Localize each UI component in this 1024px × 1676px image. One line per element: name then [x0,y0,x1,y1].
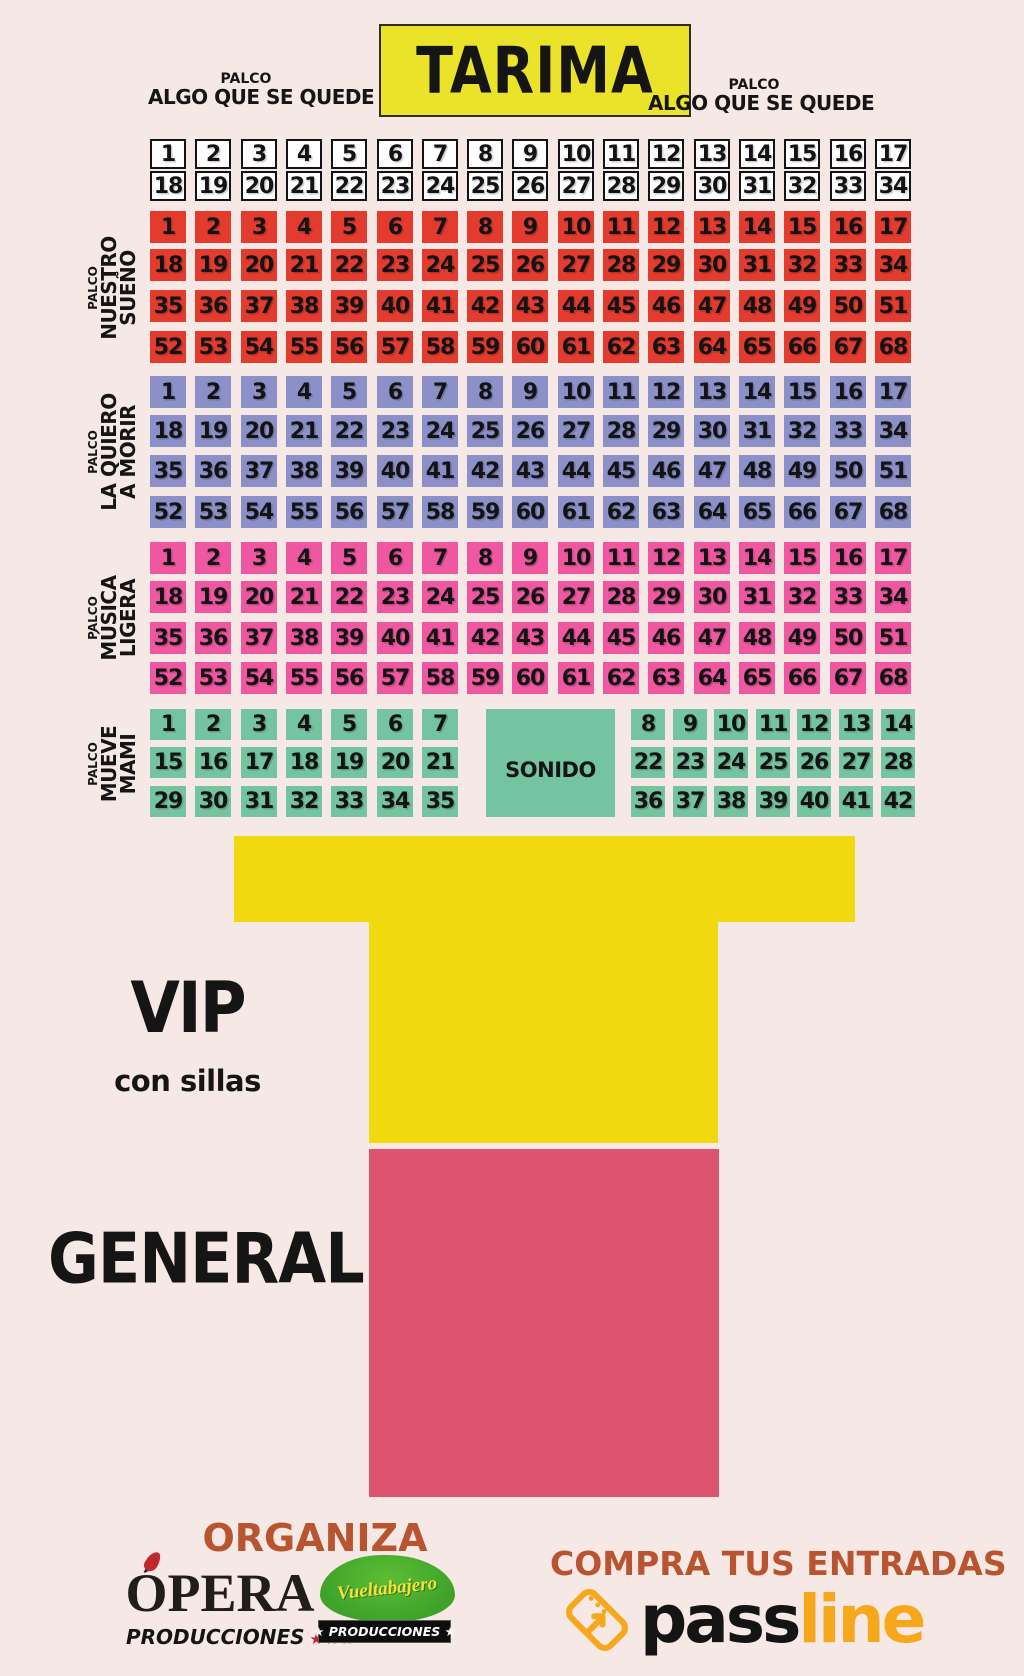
seat-musica-ligera-36[interactable]: 36 [195,622,231,654]
seat-la-quiero-a-morir-4[interactable]: 4 [286,376,322,408]
seat-nuestro-sueno-60[interactable]: 60 [512,331,548,363]
seat-nuestro-sueno-62[interactable]: 62 [603,331,639,363]
seat-la-quiero-a-morir-27[interactable]: 27 [558,415,594,447]
seat-musica-ligera-7[interactable]: 7 [422,542,458,574]
seat-nuestro-sueno-54[interactable]: 54 [241,331,277,363]
seat-musica-ligera-67[interactable]: 67 [830,662,866,694]
seat-la-quiero-a-morir-45[interactable]: 45 [603,455,639,487]
seat-nuestro-sueno-29[interactable]: 29 [648,249,684,281]
seat-la-quiero-a-morir-42[interactable]: 42 [467,455,503,487]
palco-name-line: MAMI [119,726,138,802]
seat-algo-que-se-quede-2[interactable]: 2 [195,139,231,169]
palco-algo-que-se-quede-label-left: PALCO ALGO QUE SE QUEDE [148,72,344,108]
seat-la-quiero-a-morir-29[interactable]: 29 [648,415,684,447]
seat-musica-ligera-60[interactable]: 60 [512,662,548,694]
seat-musica-ligera-62[interactable]: 62 [603,662,639,694]
seat-nuestro-sueno-32[interactable]: 32 [784,249,820,281]
seat-algo-que-se-quede-4[interactable]: 4 [286,139,322,169]
palco-name-line: A MORIR [119,393,138,510]
seat-nuestro-sueno-21[interactable]: 21 [286,249,322,281]
vip-zone-bar[interactable] [234,836,855,922]
seat-la-quiero-a-morir-33[interactable]: 33 [830,415,866,447]
seat-musica-ligera-20[interactable]: 20 [241,581,277,613]
seat-musica-ligera-66[interactable]: 66 [784,662,820,694]
seat-musica-ligera-23[interactable]: 23 [377,581,413,613]
seat-musica-ligera-41[interactable]: 41 [422,622,458,654]
seat-algo-que-se-quede-20[interactable]: 20 [241,171,277,201]
seat-nuestro-sueno-36[interactable]: 36 [195,290,231,322]
seat-mueve-mami-42[interactable]: 42 [881,786,915,817]
palco-algo-que-se-quede-label-right: PALCO ALGO QUE SE QUEDE [648,78,860,114]
seat-algo-que-se-quede-9[interactable]: 9 [512,139,548,169]
seat-nuestro-sueno-1[interactable]: 1 [150,211,186,243]
seat-mueve-mami-1[interactable]: 1 [150,709,186,740]
seat-musica-ligera-22[interactable]: 22 [331,581,367,613]
seat-nuestro-sueno-43[interactable]: 43 [512,290,548,322]
seat-mueve-mami-23[interactable]: 23 [673,747,707,778]
seat-mueve-mami-32[interactable]: 32 [286,786,322,817]
opera-sub-text: PRODUCCIONES [126,1625,305,1649]
seat-mueve-mami-20[interactable]: 20 [377,747,413,778]
palco-name-line: SUEÑO [119,236,138,340]
seat-la-quiero-a-morir-13[interactable]: 13 [694,376,730,408]
seat-la-quiero-a-morir-8[interactable]: 8 [467,376,503,408]
seat-algo-que-se-quede-28[interactable]: 28 [603,171,639,201]
seat-algo-que-se-quede-25[interactable]: 25 [467,171,503,201]
seat-la-quiero-a-morir-54[interactable]: 54 [241,496,277,528]
seat-musica-ligera-65[interactable]: 65 [739,662,775,694]
seat-nuestro-sueno-55[interactable]: 55 [286,331,322,363]
general-title: GENERAL [48,1218,348,1300]
seat-musica-ligera-4[interactable]: 4 [286,542,322,574]
seat-musica-ligera-46[interactable]: 46 [648,622,684,654]
seat-musica-ligera-32[interactable]: 32 [784,581,820,613]
seat-algo-que-se-quede-22[interactable]: 22 [331,171,367,201]
seat-mueve-mami-41[interactable]: 41 [839,786,873,817]
sound-booth-label: SONIDO [505,758,596,782]
stage-tarima: TARIMA [379,24,691,117]
seat-la-quiero-a-morir-19[interactable]: 19 [195,415,231,447]
seat-la-quiero-a-morir-63[interactable]: 63 [648,496,684,528]
seat-musica-ligera-55[interactable]: 55 [286,662,322,694]
seat-nuestro-sueno-49[interactable]: 49 [784,290,820,322]
seat-algo-que-se-quede-3[interactable]: 3 [241,139,277,169]
seat-nuestro-sueno-22[interactable]: 22 [331,249,367,281]
seat-algo-que-se-quede-12[interactable]: 12 [648,139,684,169]
seat-nuestro-sueno-18[interactable]: 18 [150,249,186,281]
seat-la-quiero-a-morir-60[interactable]: 60 [512,496,548,528]
seat-la-quiero-a-morir-11[interactable]: 11 [603,376,639,408]
seat-la-quiero-a-morir-15[interactable]: 15 [784,376,820,408]
seat-mueve-mami-31[interactable]: 31 [241,786,277,817]
seat-la-quiero-a-morir-6[interactable]: 6 [377,376,413,408]
seat-musica-ligera-21[interactable]: 21 [286,581,322,613]
seat-nuestro-sueno-16[interactable]: 16 [830,211,866,243]
seat-la-quiero-a-morir-39[interactable]: 39 [331,455,367,487]
seat-musica-ligera-64[interactable]: 64 [694,662,730,694]
seat-musica-ligera-59[interactable]: 59 [467,662,503,694]
seat-musica-ligera-63[interactable]: 63 [648,662,684,694]
seat-nuestro-sueno-39[interactable]: 39 [331,290,367,322]
seat-nuestro-sueno-45[interactable]: 45 [603,290,639,322]
seat-nuestro-sueno-12[interactable]: 12 [648,211,684,243]
seat-algo-que-se-quede-7[interactable]: 7 [422,139,458,169]
seat-musica-ligera-39[interactable]: 39 [331,622,367,654]
seat-la-quiero-a-morir-46[interactable]: 46 [648,455,684,487]
seat-algo-que-se-quede-30[interactable]: 30 [694,171,730,201]
seat-nuestro-sueno-10[interactable]: 10 [558,211,594,243]
seat-la-quiero-a-morir-43[interactable]: 43 [512,455,548,487]
seat-musica-ligera-40[interactable]: 40 [377,622,413,654]
seat-musica-ligera-10[interactable]: 10 [558,542,594,574]
seat-la-quiero-a-morir-2[interactable]: 2 [195,376,231,408]
seat-mueve-mami-28[interactable]: 28 [881,747,915,778]
seat-nuestro-sueno-38[interactable]: 38 [286,290,322,322]
seat-musica-ligera-58[interactable]: 58 [422,662,458,694]
seat-la-quiero-a-morir-38[interactable]: 38 [286,455,322,487]
seat-musica-ligera-1[interactable]: 1 [150,542,186,574]
seat-nuestro-sueno-9[interactable]: 9 [512,211,548,243]
seat-mueve-mami-14[interactable]: 14 [881,709,915,740]
vip-title: VIP [100,968,275,1049]
seat-nuestro-sueno-17[interactable]: 17 [875,211,911,243]
seat-mueve-mami-25[interactable]: 25 [756,747,790,778]
seat-la-quiero-a-morir-53[interactable]: 53 [195,496,231,528]
seat-la-quiero-a-morir-47[interactable]: 47 [694,455,730,487]
seat-mueve-mami-34[interactable]: 34 [377,786,413,817]
seat-mueve-mami-10[interactable]: 10 [714,709,748,740]
seat-musica-ligera-47[interactable]: 47 [694,622,730,654]
organiza-label: ORGANIZA [190,1516,440,1560]
seat-nuestro-sueno-3[interactable]: 3 [241,211,277,243]
seat-la-quiero-a-morir-58[interactable]: 58 [422,496,458,528]
seat-nuestro-sueno-56[interactable]: 56 [331,331,367,363]
seat-la-quiero-a-morir-31[interactable]: 31 [739,415,775,447]
seat-la-quiero-a-morir-66[interactable]: 66 [784,496,820,528]
seat-nuestro-sueno-7[interactable]: 7 [422,211,458,243]
seat-mueve-mami-40[interactable]: 40 [797,786,831,817]
seat-nuestro-sueno-13[interactable]: 13 [694,211,730,243]
seat-mueve-mami-37[interactable]: 37 [673,786,707,817]
seat-algo-que-se-quede-29[interactable]: 29 [648,171,684,201]
seat-musica-ligera-53[interactable]: 53 [195,662,231,694]
seat-la-quiero-a-morir-7[interactable]: 7 [422,376,458,408]
seat-mueve-mami-12[interactable]: 12 [797,709,831,740]
seat-nuestro-sueno-5[interactable]: 5 [331,211,367,243]
seat-algo-que-se-quede-18[interactable]: 18 [150,171,186,201]
seat-nuestro-sueno-11[interactable]: 11 [603,211,639,243]
seat-mueve-mami-6[interactable]: 6 [377,709,413,740]
seat-musica-ligera-24[interactable]: 24 [422,581,458,613]
seat-nuestro-sueno-41[interactable]: 41 [422,290,458,322]
seat-musica-ligera-68[interactable]: 68 [875,662,911,694]
vueltabajero-name: Vueltabajero [336,1572,438,1604]
seat-la-quiero-a-morir-52[interactable]: 52 [150,496,186,528]
seat-musica-ligera-8[interactable]: 8 [467,542,503,574]
seat-nuestro-sueno-57[interactable]: 57 [377,331,413,363]
seat-nuestro-sueno-42[interactable]: 42 [467,290,503,322]
seat-nuestro-sueno-61[interactable]: 61 [558,331,594,363]
seat-algo-que-se-quede-23[interactable]: 23 [377,171,413,201]
seat-nuestro-sueno-64[interactable]: 64 [694,331,730,363]
seat-mueve-mami-5[interactable]: 5 [331,709,367,740]
seat-nuestro-sueno-27[interactable]: 27 [558,249,594,281]
seat-la-quiero-a-morir-40[interactable]: 40 [377,455,413,487]
seat-la-quiero-a-morir-62[interactable]: 62 [603,496,639,528]
seat-mueve-mami-29[interactable]: 29 [150,786,186,817]
seat-musica-ligera-13[interactable]: 13 [694,542,730,574]
seat-musica-ligera-42[interactable]: 42 [467,622,503,654]
seat-algo-que-se-quede-5[interactable]: 5 [331,139,367,169]
seat-mueve-mami-4[interactable]: 4 [286,709,322,740]
seat-nuestro-sueno-26[interactable]: 26 [512,249,548,281]
seat-musica-ligera-49[interactable]: 49 [784,622,820,654]
seat-musica-ligera-5[interactable]: 5 [331,542,367,574]
seat-la-quiero-a-morir-44[interactable]: 44 [558,455,594,487]
seat-algo-que-se-quede-31[interactable]: 31 [739,171,775,201]
seat-mueve-mami-9[interactable]: 9 [673,709,707,740]
seat-musica-ligera-45[interactable]: 45 [603,622,639,654]
seat-musica-ligera-56[interactable]: 56 [331,662,367,694]
seat-la-quiero-a-morir-49[interactable]: 49 [784,455,820,487]
seat-musica-ligera-61[interactable]: 61 [558,662,594,694]
seat-musica-ligera-9[interactable]: 9 [512,542,548,574]
seat-musica-ligera-28[interactable]: 28 [603,581,639,613]
seat-la-quiero-a-morir-32[interactable]: 32 [784,415,820,447]
seat-nuestro-sueno-6[interactable]: 6 [377,211,413,243]
seat-la-quiero-a-morir-26[interactable]: 26 [512,415,548,447]
seat-musica-ligera-35[interactable]: 35 [150,622,186,654]
seat-mueve-mami-30[interactable]: 30 [195,786,231,817]
seat-musica-ligera-57[interactable]: 57 [377,662,413,694]
seat-la-quiero-a-morir-22[interactable]: 22 [331,415,367,447]
seat-la-quiero-a-morir-28[interactable]: 28 [603,415,639,447]
seat-mueve-mami-21[interactable]: 21 [422,747,458,778]
seat-la-quiero-a-morir-51[interactable]: 51 [875,455,911,487]
side-label-la-quiero-a-morir: PALCOLA QUIEROA MORIR [86,393,138,510]
seat-la-quiero-a-morir-67[interactable]: 67 [830,496,866,528]
seat-algo-que-se-quede-24[interactable]: 24 [422,171,458,201]
seat-nuestro-sueno-15[interactable]: 15 [784,211,820,243]
seat-nuestro-sueno-33[interactable]: 33 [830,249,866,281]
seat-algo-que-se-quede-8[interactable]: 8 [467,139,503,169]
seat-musica-ligera-6[interactable]: 6 [377,542,413,574]
seat-nuestro-sueno-59[interactable]: 59 [467,331,503,363]
seat-mueve-mami-17[interactable]: 17 [241,747,277,778]
seat-algo-que-se-quede-21[interactable]: 21 [286,171,322,201]
seat-nuestro-sueno-14[interactable]: 14 [739,211,775,243]
seat-la-quiero-a-morir-12[interactable]: 12 [648,376,684,408]
seat-algo-que-se-quede-17[interactable]: 17 [875,139,911,169]
seat-algo-que-se-quede-33[interactable]: 33 [830,171,866,201]
seat-la-quiero-a-morir-1[interactable]: 1 [150,376,186,408]
seat-musica-ligera-33[interactable]: 33 [830,581,866,613]
seat-musica-ligera-52[interactable]: 52 [150,662,186,694]
seat-la-quiero-a-morir-16[interactable]: 16 [830,376,866,408]
seat-nuestro-sueno-40[interactable]: 40 [377,290,413,322]
seat-musica-ligera-44[interactable]: 44 [558,622,594,654]
seat-la-quiero-a-morir-17[interactable]: 17 [875,376,911,408]
seat-mueve-mami-2[interactable]: 2 [195,709,231,740]
seat-algo-que-se-quede-13[interactable]: 13 [694,139,730,169]
seat-nuestro-sueno-53[interactable]: 53 [195,331,231,363]
seat-la-quiero-a-morir-34[interactable]: 34 [875,415,911,447]
seat-la-quiero-a-morir-25[interactable]: 25 [467,415,503,447]
seat-la-quiero-a-morir-36[interactable]: 36 [195,455,231,487]
seat-la-quiero-a-morir-41[interactable]: 41 [422,455,458,487]
seat-musica-ligera-31[interactable]: 31 [739,581,775,613]
seat-mueve-mami-39[interactable]: 39 [756,786,790,817]
seat-musica-ligera-54[interactable]: 54 [241,662,277,694]
seat-mueve-mami-8[interactable]: 8 [631,709,665,740]
seat-mueve-mami-3[interactable]: 3 [241,709,277,740]
seat-mueve-mami-36[interactable]: 36 [631,786,665,817]
seat-musica-ligera-50[interactable]: 50 [830,622,866,654]
seat-nuestro-sueno-46[interactable]: 46 [648,290,684,322]
seat-musica-ligera-19[interactable]: 19 [195,581,231,613]
seat-la-quiero-a-morir-56[interactable]: 56 [331,496,367,528]
seat-musica-ligera-18[interactable]: 18 [150,581,186,613]
seat-la-quiero-a-morir-61[interactable]: 61 [558,496,594,528]
seat-nuestro-sueno-51[interactable]: 51 [875,290,911,322]
seat-nuestro-sueno-23[interactable]: 23 [377,249,413,281]
seat-musica-ligera-12[interactable]: 12 [648,542,684,574]
seat-la-quiero-a-morir-55[interactable]: 55 [286,496,322,528]
seat-la-quiero-a-morir-35[interactable]: 35 [150,455,186,487]
seat-la-quiero-a-morir-59[interactable]: 59 [467,496,503,528]
seat-nuestro-sueno-35[interactable]: 35 [150,290,186,322]
seat-nuestro-sueno-44[interactable]: 44 [558,290,594,322]
seat-la-quiero-a-morir-20[interactable]: 20 [241,415,277,447]
seat-la-quiero-a-morir-18[interactable]: 18 [150,415,186,447]
seat-nuestro-sueno-66[interactable]: 66 [784,331,820,363]
seat-nuestro-sueno-8[interactable]: 8 [467,211,503,243]
seat-musica-ligera-38[interactable]: 38 [286,622,322,654]
seat-la-quiero-a-morir-9[interactable]: 9 [512,376,548,408]
seat-algo-que-se-quede-19[interactable]: 19 [195,171,231,201]
seat-mueve-mami-22[interactable]: 22 [631,747,665,778]
seat-nuestro-sueno-20[interactable]: 20 [241,249,277,281]
seat-algo-que-se-quede-11[interactable]: 11 [603,139,639,169]
general-zone[interactable] [369,1149,719,1497]
seat-algo-que-se-quede-1[interactable]: 1 [150,139,186,169]
seat-mueve-mami-33[interactable]: 33 [331,786,367,817]
seat-algo-que-se-quede-16[interactable]: 16 [830,139,866,169]
seat-nuestro-sueno-24[interactable]: 24 [422,249,458,281]
seat-nuestro-sueno-4[interactable]: 4 [286,211,322,243]
seat-la-quiero-a-morir-48[interactable]: 48 [739,455,775,487]
seat-musica-ligera-30[interactable]: 30 [694,581,730,613]
seat-nuestro-sueno-37[interactable]: 37 [241,290,277,322]
seat-algo-que-se-quede-10[interactable]: 10 [558,139,594,169]
seat-la-quiero-a-morir-37[interactable]: 37 [241,455,277,487]
passline-word-pass: pass [640,1587,798,1653]
seat-la-quiero-a-morir-64[interactable]: 64 [694,496,730,528]
seat-la-quiero-a-morir-68[interactable]: 68 [875,496,911,528]
seat-mueve-mami-38[interactable]: 38 [714,786,748,817]
seat-la-quiero-a-morir-10[interactable]: 10 [558,376,594,408]
seat-nuestro-sueno-52[interactable]: 52 [150,331,186,363]
seat-musica-ligera-29[interactable]: 29 [648,581,684,613]
seat-musica-ligera-26[interactable]: 26 [512,581,548,613]
seat-la-quiero-a-morir-30[interactable]: 30 [694,415,730,447]
seat-mueve-mami-18[interactable]: 18 [286,747,322,778]
seat-la-quiero-a-morir-23[interactable]: 23 [377,415,413,447]
seat-la-quiero-a-morir-5[interactable]: 5 [331,376,367,408]
seat-nuestro-sueno-2[interactable]: 2 [195,211,231,243]
seat-musica-ligera-2[interactable]: 2 [195,542,231,574]
seat-la-quiero-a-morir-65[interactable]: 65 [739,496,775,528]
seat-nuestro-sueno-30[interactable]: 30 [694,249,730,281]
seat-algo-que-se-quede-14[interactable]: 14 [739,139,775,169]
seat-mueve-mami-24[interactable]: 24 [714,747,748,778]
seat-mueve-mami-35[interactable]: 35 [422,786,458,817]
seat-la-quiero-a-morir-57[interactable]: 57 [377,496,413,528]
seat-nuestro-sueno-31[interactable]: 31 [739,249,775,281]
seat-mueve-mami-16[interactable]: 16 [195,747,231,778]
seat-musica-ligera-51[interactable]: 51 [875,622,911,654]
vip-zone-stem[interactable] [369,921,718,1143]
seat-musica-ligera-11[interactable]: 11 [603,542,639,574]
seat-nuestro-sueno-67[interactable]: 67 [830,331,866,363]
seat-algo-que-se-quede-32[interactable]: 32 [784,171,820,201]
seat-la-quiero-a-morir-21[interactable]: 21 [286,415,322,447]
seat-nuestro-sueno-28[interactable]: 28 [603,249,639,281]
seat-nuestro-sueno-47[interactable]: 47 [694,290,730,322]
seat-musica-ligera-15[interactable]: 15 [784,542,820,574]
seat-musica-ligera-16[interactable]: 16 [830,542,866,574]
seat-mueve-mami-13[interactable]: 13 [839,709,873,740]
seat-nuestro-sueno-48[interactable]: 48 [739,290,775,322]
vueltabajero-producciones-bar: ★ PRODUCCIONES ★ [318,1620,451,1643]
seat-musica-ligera-48[interactable]: 48 [739,622,775,654]
seat-la-quiero-a-morir-3[interactable]: 3 [241,376,277,408]
seat-mueve-mami-27[interactable]: 27 [839,747,873,778]
seat-musica-ligera-34[interactable]: 34 [875,581,911,613]
seat-musica-ligera-37[interactable]: 37 [241,622,277,654]
seat-musica-ligera-27[interactable]: 27 [558,581,594,613]
seat-musica-ligera-14[interactable]: 14 [739,542,775,574]
seat-algo-que-se-quede-15[interactable]: 15 [784,139,820,169]
seat-musica-ligera-43[interactable]: 43 [512,622,548,654]
seat-mueve-mami-15[interactable]: 15 [150,747,186,778]
seat-nuestro-sueno-34[interactable]: 34 [875,249,911,281]
seat-algo-que-se-quede-6[interactable]: 6 [377,139,413,169]
seat-musica-ligera-17[interactable]: 17 [875,542,911,574]
seat-algo-que-se-quede-27[interactable]: 27 [558,171,594,201]
seating-map-poster: TARIMA PALCO ALGO QUE SE QUEDE PALCO ALG… [0,0,1024,1676]
seat-mueve-mami-7[interactable]: 7 [422,709,458,740]
seat-nuestro-sueno-65[interactable]: 65 [739,331,775,363]
seat-algo-que-se-quede-34[interactable]: 34 [875,171,911,201]
seat-nuestro-sueno-63[interactable]: 63 [648,331,684,363]
seat-la-quiero-a-morir-50[interactable]: 50 [830,455,866,487]
seat-musica-ligera-25[interactable]: 25 [467,581,503,613]
seat-mueve-mami-11[interactable]: 11 [756,709,790,740]
seat-musica-ligera-3[interactable]: 3 [241,542,277,574]
seat-mueve-mami-19[interactable]: 19 [331,747,367,778]
palco-name-label: ALGO QUE SE QUEDE [648,93,860,114]
seat-nuestro-sueno-68[interactable]: 68 [875,331,911,363]
seat-algo-que-se-quede-26[interactable]: 26 [512,171,548,201]
seat-nuestro-sueno-25[interactable]: 25 [467,249,503,281]
seat-la-quiero-a-morir-24[interactable]: 24 [422,415,458,447]
seat-nuestro-sueno-19[interactable]: 19 [195,249,231,281]
seat-la-quiero-a-morir-14[interactable]: 14 [739,376,775,408]
seat-mueve-mami-26[interactable]: 26 [797,747,831,778]
seat-nuestro-sueno-58[interactable]: 58 [422,331,458,363]
seat-nuestro-sueno-50[interactable]: 50 [830,290,866,322]
